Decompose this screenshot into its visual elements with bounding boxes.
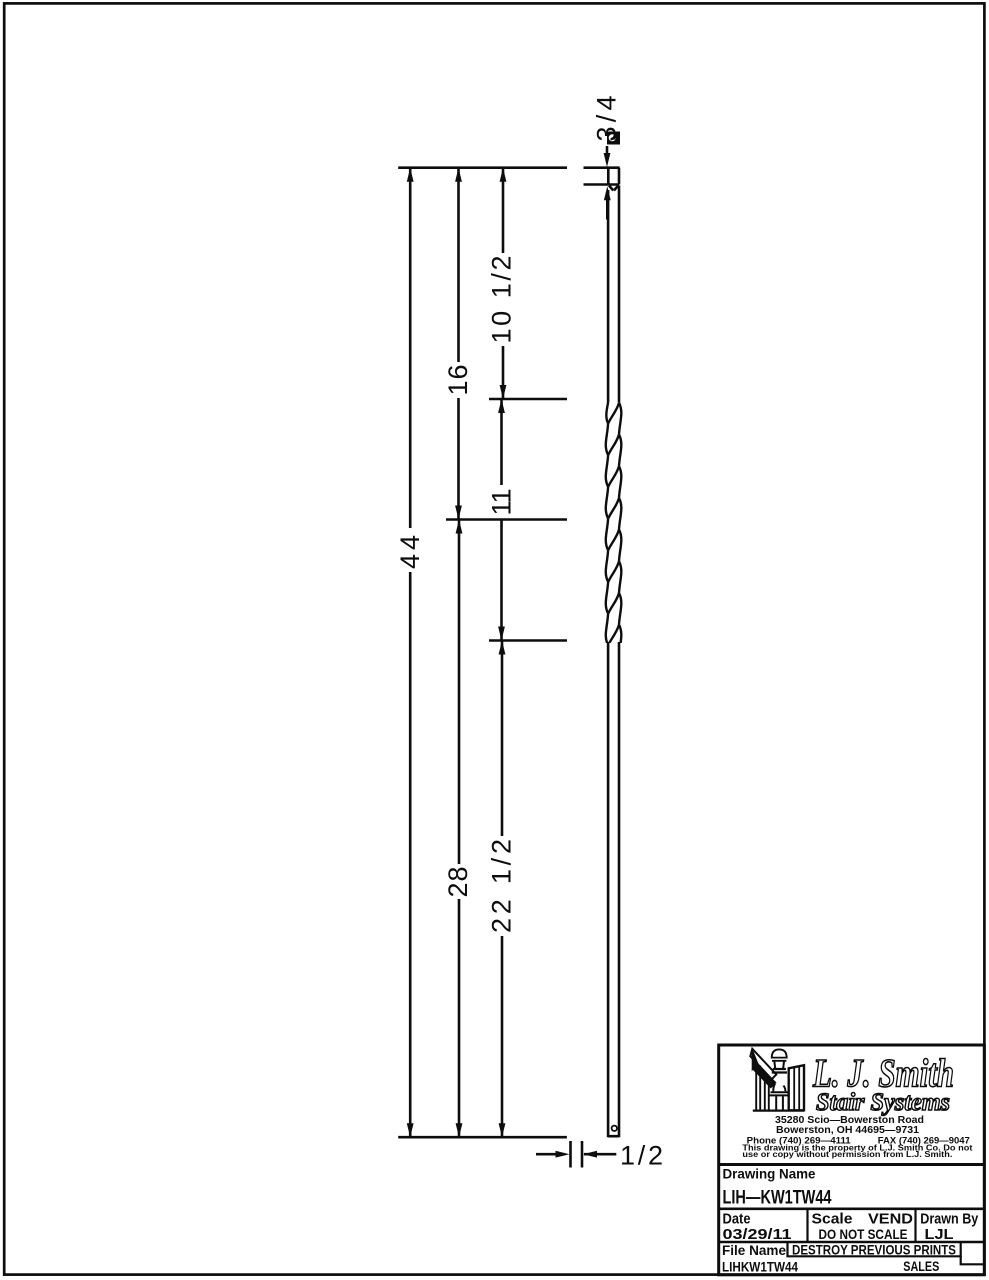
svg-text:SALES: SALES [903, 1258, 939, 1274]
svg-text:Drawing Name: Drawing Name [723, 1167, 816, 1182]
svg-text:File Name: File Name [722, 1242, 786, 1258]
svg-text:16: 16 [443, 365, 473, 396]
svg-text:Drawn By: Drawn By [920, 1210, 979, 1227]
svg-text:1/2: 1/2 [620, 1141, 663, 1171]
svg-text:DESTROY PREVIOUS PRINTS: DESTROY PREVIOUS PRINTS [792, 1241, 956, 1257]
svg-text:Stair Systems: Stair Systems [816, 1089, 950, 1116]
svg-text:LIHKW1TW44: LIHKW1TW44 [722, 1258, 798, 1274]
svg-text:LJL: LJL [925, 1226, 954, 1243]
svg-text:DO NOT SCALE: DO NOT SCALE [819, 1226, 908, 1242]
svg-text:Date: Date [723, 1210, 751, 1227]
svg-text:03/29/11: 03/29/11 [723, 1226, 792, 1243]
svg-text:LIH—KW1TW44: LIH—KW1TW44 [723, 1188, 832, 1209]
svg-text:3/4: 3/4 [592, 96, 622, 142]
svg-text:Scale: Scale [812, 1210, 853, 1227]
svg-text:Bowerston, OH 44695—9731: Bowerston, OH 44695—9731 [776, 1124, 919, 1136]
svg-text:11: 11 [487, 489, 517, 516]
svg-text:use or copy without permission: use or copy without permission from L.J.… [742, 1149, 952, 1159]
svg-text:28: 28 [443, 867, 473, 898]
svg-text:VEND: VEND [868, 1210, 913, 1227]
